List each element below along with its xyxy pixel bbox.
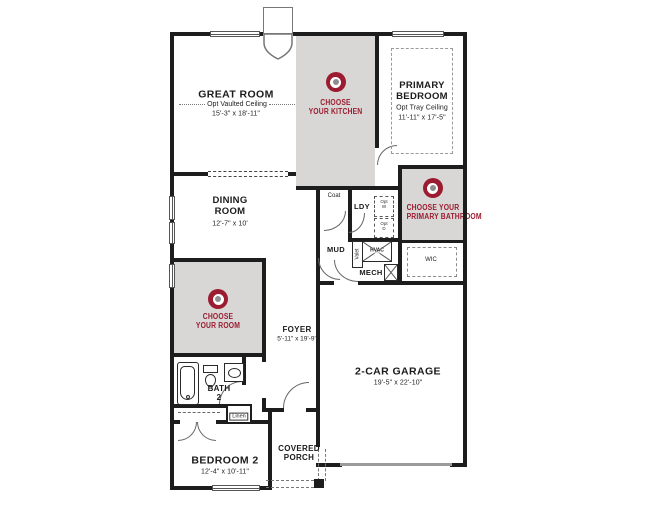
cta-bathroom-line1: CHOOSE YOUR — [407, 203, 459, 212]
cased-opening — [208, 171, 288, 177]
entry-door-panel — [263, 7, 293, 34]
wall-segment — [268, 408, 272, 490]
closet-door-arc — [197, 422, 216, 441]
toilet-tank — [203, 365, 218, 373]
bath2-label-2: 2 — [217, 394, 222, 402]
wall-segment — [375, 36, 379, 148]
wall-segment — [398, 165, 402, 285]
window — [169, 264, 175, 288]
mech-label: MECH — [359, 269, 382, 277]
opt-dryer: Opt D — [374, 218, 394, 238]
wall-segment — [316, 281, 320, 447]
foyer-dims: 5'-11" x 19'-9" — [277, 337, 317, 344]
target-icon — [326, 72, 346, 92]
hvac-label: HVAC — [370, 248, 384, 253]
cta-kitchen-line2: YOUR KITCHEN — [302, 107, 369, 116]
wall-segment — [262, 258, 266, 362]
target-icon — [208, 289, 228, 309]
coat-label: Coat — [328, 193, 341, 199]
wall-segment — [398, 165, 467, 169]
cta-room-line1: CHOOSE — [181, 312, 256, 321]
bedroom2-dims: 12'-4" x 10'-11" — [201, 468, 249, 475]
entry-door-swing — [263, 34, 293, 60]
primary-bedroom-label-1: PRIMARY — [399, 81, 445, 91]
covered-porch-label-2: PORCH — [284, 454, 314, 462]
window — [392, 31, 444, 37]
dotted-line — [269, 104, 295, 105]
dotted-line — [179, 104, 205, 105]
floor-plan: CHOOSE YOUR KITCHEN CHOOSE YOUR PRIMARY … — [0, 0, 650, 520]
linen-label: Linen — [229, 406, 248, 423]
great-room-dims: 15'-3" x 18'-11" — [212, 110, 260, 117]
primary-bedroom-option: Opt Tray Ceiling — [396, 104, 448, 111]
great-room-option: Opt Vaulted Ceiling — [179, 101, 295, 108]
window — [169, 222, 175, 244]
bedroom2-label: BEDROOM 2 — [191, 455, 258, 466]
target-icon — [423, 178, 443, 198]
opt-washer: Opt W — [374, 196, 394, 217]
great-room-option-label: Opt Vaulted Ceiling — [207, 101, 267, 108]
laundry-label: LDY — [354, 203, 370, 211]
wall-segment — [450, 463, 467, 467]
wall-segment — [463, 32, 467, 467]
wall-segment — [306, 408, 318, 412]
porch-post-line — [318, 449, 326, 481]
cta-kitchen-line1: CHOOSE — [302, 98, 369, 107]
valet-label: Valet — [355, 248, 360, 259]
dining-room-dims: 12'-7" x 10' — [212, 220, 248, 227]
foyer-label: FOYER — [282, 326, 311, 334]
garage-door — [340, 463, 452, 466]
wall-segment — [170, 353, 266, 357]
cta-room-line2: YOUR ROOM — [181, 321, 256, 330]
closet-rod — [178, 412, 220, 413]
primary-bedroom-dims: 11'-11" x 17'-5" — [398, 114, 446, 121]
garage-dims: 19'-5" x 22'-10" — [374, 379, 423, 386]
bathtub — [177, 362, 199, 405]
choose-your-kitchen-hotspot[interactable]: CHOOSE YOUR KITCHEN — [296, 36, 375, 186]
wall-segment — [402, 240, 463, 243]
front-door-arc — [283, 382, 309, 408]
window — [169, 196, 175, 220]
bathtub-drain — [186, 395, 190, 399]
cta-bathroom-line2: PRIMARY BATHROOM — [407, 212, 459, 221]
garage-label: 2-CAR GARAGE — [355, 366, 441, 377]
wall-segment — [288, 172, 296, 176]
wic-label: WIC — [425, 257, 437, 263]
sink-basin — [228, 368, 241, 378]
porch-post — [314, 479, 324, 488]
water-heater — [384, 264, 398, 281]
wall-segment — [170, 172, 208, 176]
sink-counter — [224, 363, 244, 382]
window — [210, 31, 260, 37]
choose-your-room-hotspot[interactable]: CHOOSE YOUR ROOM — [174, 262, 262, 353]
mud-label: MUD — [327, 246, 345, 254]
great-room-label: GREAT ROOM — [198, 89, 274, 100]
door-arc — [324, 211, 346, 231]
door-arc — [349, 213, 365, 233]
primary-bedroom-label-2: BEDROOM — [396, 92, 448, 102]
wall-segment — [358, 281, 467, 285]
wall-segment — [170, 258, 266, 262]
closet-door-arc — [178, 422, 197, 441]
choose-your-primary-bathroom-hotspot[interactable]: CHOOSE YOUR PRIMARY BATHROOM — [402, 169, 463, 240]
dining-room-label-1: DINING — [212, 196, 247, 206]
window — [212, 485, 260, 491]
dining-room-label-2: ROOM — [215, 207, 246, 217]
